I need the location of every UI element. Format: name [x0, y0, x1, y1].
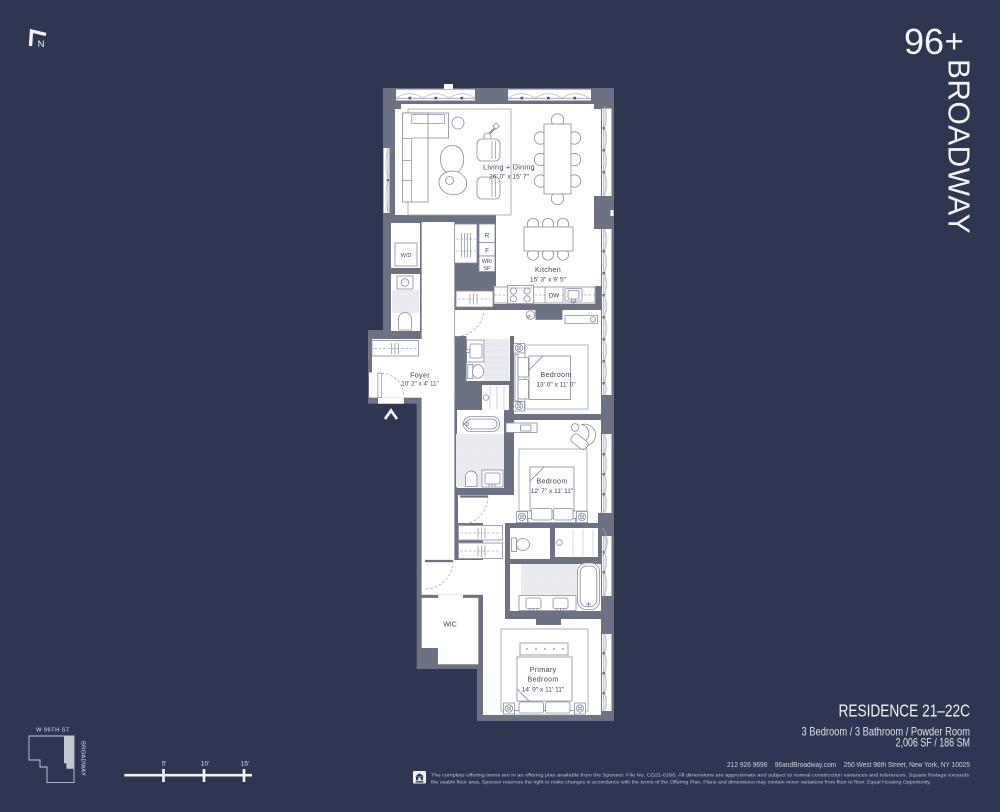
svg-text:96: 96 — [904, 21, 944, 62]
svg-text:W/D: W/D — [401, 253, 412, 259]
svg-text:12' 7" x 11' 11": 12' 7" x 11' 11" — [531, 488, 574, 495]
svg-text:15': 15' — [241, 761, 249, 768]
svg-text:212 926 9696 96andBroadway.: 212 926 9696 96andBroadway.com 250 West … — [727, 760, 970, 769]
svg-text:BROADWAY: BROADWAY — [942, 59, 976, 234]
svg-text:WIC: WIC — [443, 622, 457, 629]
svg-text:SP: SP — [483, 266, 491, 272]
svg-text:BROADWAY: BROADWAY — [80, 741, 86, 776]
svg-text:Foyer: Foyer — [410, 370, 430, 379]
svg-text:10': 10' — [201, 761, 209, 768]
svg-text:WR/: WR/ — [482, 259, 493, 265]
svg-text:Living + Dining: Living + Dining — [483, 163, 535, 172]
svg-text:Bedroom: Bedroom — [527, 675, 558, 684]
svg-text:2,006 SF / 186 SM: 2,006 SF / 186 SM — [896, 736, 971, 750]
svg-text:10' 2" x 4' 11": 10' 2" x 4' 11" — [401, 381, 439, 388]
svg-text:DW: DW — [549, 293, 559, 300]
svg-text:14' 9" x 11' 11": 14' 9" x 11' 11" — [522, 687, 565, 694]
svg-text:Kitchen: Kitchen — [535, 265, 561, 274]
svg-text:13' 0" x 11' 0": 13' 0" x 11' 0" — [536, 382, 576, 389]
svg-text:F: F — [485, 248, 489, 255]
svg-text:N: N — [38, 39, 45, 50]
svg-text:The complete offering terms ar: The complete offering terms are in an of… — [431, 773, 970, 778]
svg-text:Bedroom: Bedroom — [540, 370, 571, 379]
svg-text:26' 0" x 15' 7": 26' 0" x 15' 7" — [489, 174, 529, 181]
svg-text:the usable floor area. Sponsor: the usable floor area. Sponsor reserves … — [431, 780, 931, 785]
svg-text:15' 3" x 9' 5": 15' 3" x 9' 5" — [530, 277, 567, 284]
svg-text:5': 5' — [162, 761, 167, 768]
svg-text:Bedroom: Bedroom — [536, 477, 567, 486]
svg-text:Primary: Primary — [530, 665, 557, 674]
svg-text:W 96TH ST: W 96TH ST — [36, 728, 70, 734]
svg-text:R: R — [485, 233, 490, 240]
svg-text:+: + — [945, 23, 964, 60]
svg-text:RESIDENCE 21–22C: RESIDENCE 21–22C — [839, 701, 971, 721]
